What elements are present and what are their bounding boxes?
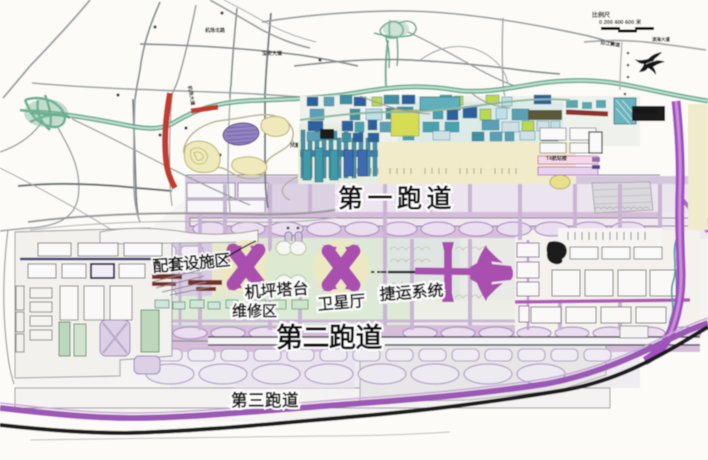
svg-text:滨海大道: 滨海大道: [652, 36, 670, 43]
svg-text:比例尺: 比例尺: [592, 11, 610, 19]
svg-text:航站区规划: 航站区规划: [635, 108, 658, 115]
svg-text:维修区: 维修区: [232, 302, 277, 320]
svg-text:第一跑道: 第一跑道: [338, 184, 456, 213]
svg-text:宝安大道: 宝安大道: [262, 50, 282, 57]
svg-text:机场北路: 机场北路: [204, 27, 226, 34]
svg-text:第三跑道: 第三跑道: [231, 390, 299, 410]
svg-text:第二跑道: 第二跑道: [276, 322, 382, 353]
svg-text:T4航站楼: T4航站楼: [546, 155, 567, 162]
svg-text:0 200 400 600 米: 0 200 400 600 米: [599, 18, 642, 26]
